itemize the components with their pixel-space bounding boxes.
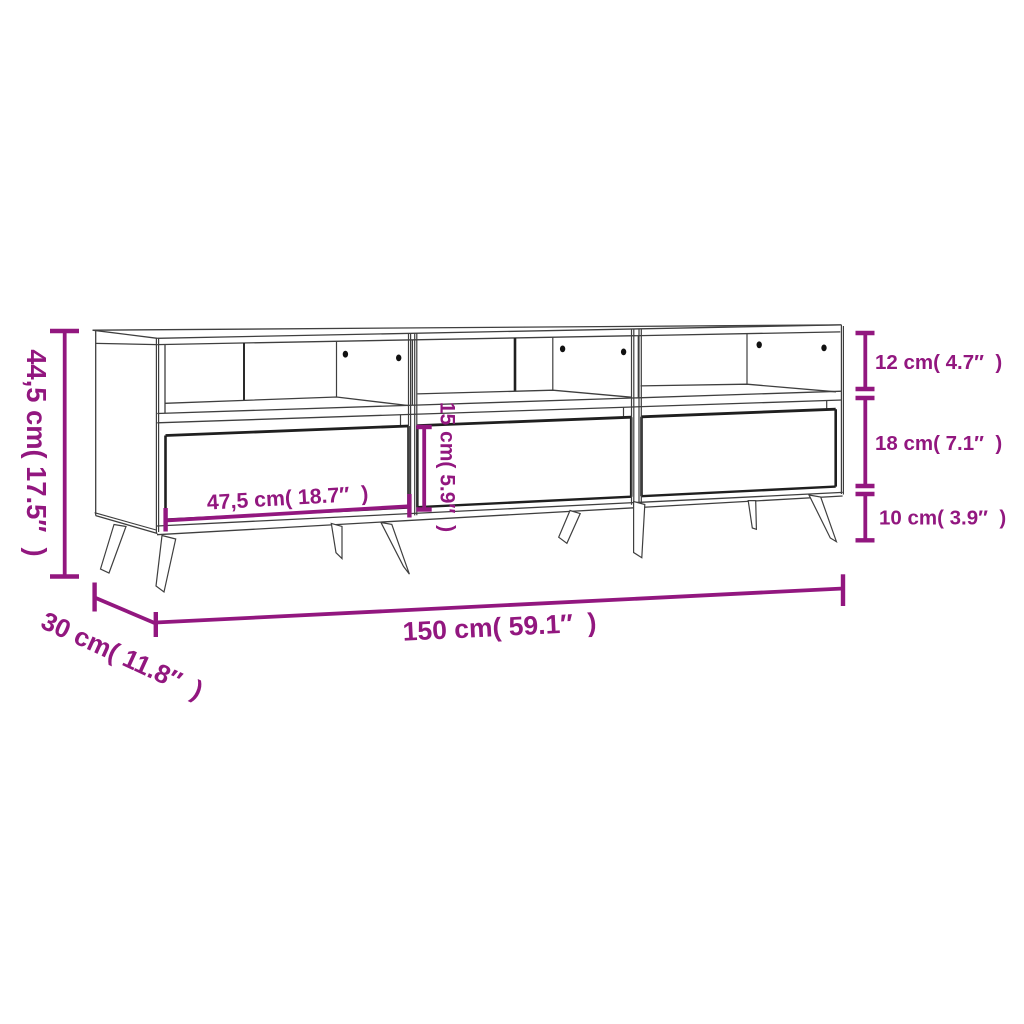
svg-text:12 cm( 4.7″ ): 12 cm( 4.7″ ) — [875, 351, 1002, 374]
svg-text:18 cm( 7.1″ ): 18 cm( 7.1″ ) — [875, 432, 1002, 455]
svg-text:15 cm( 5.9″ ): 15 cm( 5.9″ ) — [435, 402, 458, 532]
svg-text:44,5 cm( 17.5″ ): 44,5 cm( 17.5″ ) — [21, 349, 52, 556]
svg-text:150 cm( 59.1″ ): 150 cm( 59.1″ ) — [402, 607, 597, 647]
svg-text:10 cm( 3.9″ ): 10 cm( 3.9″ ) — [879, 507, 1006, 530]
